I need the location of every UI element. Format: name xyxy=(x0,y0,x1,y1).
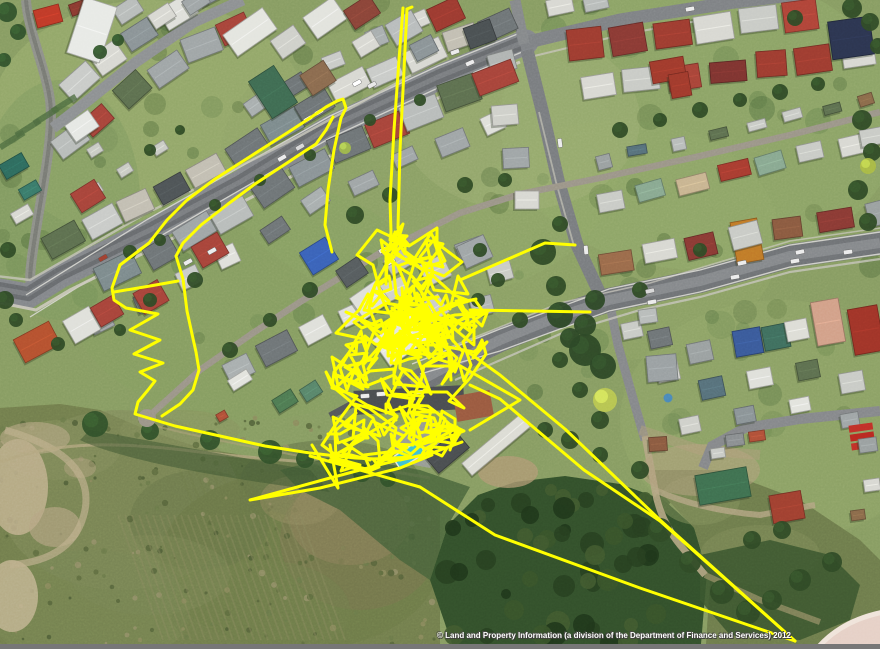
svg-text:© Land and Property Informatio: © Land and Property Information (a divis… xyxy=(437,631,792,640)
